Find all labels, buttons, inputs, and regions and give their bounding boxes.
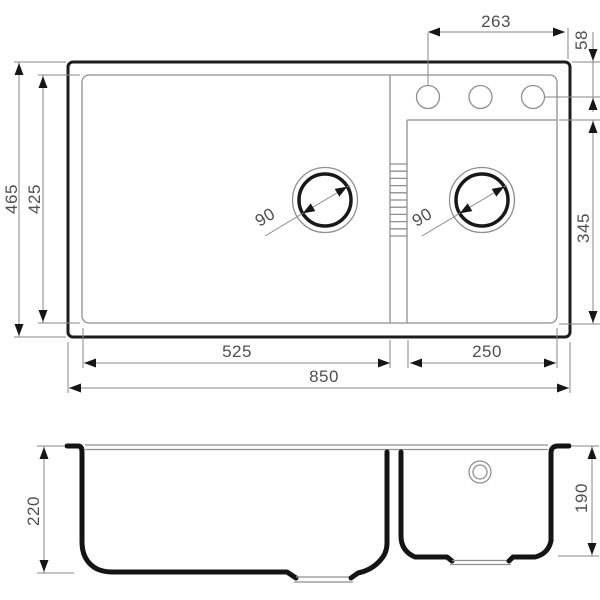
- outer-rim: [68, 62, 570, 337]
- arrow-left-icon: [84, 359, 96, 368]
- dim-lines: [428, 28, 568, 85]
- dim-right-bowl-length: 250: [408, 328, 557, 368]
- dim-label-525: 525: [222, 342, 252, 361]
- dim-faucet-offset: 58: [544, 30, 600, 112]
- arrow-down-icon: [589, 311, 598, 323]
- arrow-right-icon: [544, 359, 556, 368]
- arrow-right-icon: [557, 384, 569, 393]
- arrow-up-icon: [588, 447, 597, 459]
- drawing-canvas: 90 90 465 425: [0, 0, 600, 600]
- dim-right-bowl-width: 345: [559, 120, 600, 324]
- faucet-hole-2: [469, 86, 492, 109]
- right-drain-recess: [450, 561, 511, 565]
- dim-left-bowl-depth: 220: [24, 446, 74, 573]
- arrow-up-icon: [40, 447, 49, 459]
- arrow-left-icon: [410, 359, 422, 368]
- arrow-right-icon: [553, 28, 565, 37]
- dim-faucet-span: 263: [428, 12, 568, 85]
- dim-inner-width: 425: [25, 75, 80, 323]
- dim-lines: [38, 75, 80, 323]
- dim-label-190: 190: [572, 483, 591, 513]
- section-drain-outer-circle: [469, 461, 491, 483]
- arrow-down-icon: [588, 543, 597, 555]
- right-bowl-profile: [509, 446, 569, 561]
- dim-left-bowl-length: 525: [83, 328, 390, 368]
- dim-label-345: 345: [574, 213, 593, 243]
- dim-label-left-drain: 90: [252, 204, 279, 231]
- sink-technical-drawing: 90 90 465 425: [0, 0, 600, 600]
- divider-right-wall: [401, 452, 452, 561]
- arrow-up-icon: [589, 121, 598, 133]
- arrow-down-icon: [40, 560, 49, 572]
- arrow-right-icon: [378, 359, 390, 368]
- rim-top-lines: [85, 445, 548, 450]
- arrow-up-icon: [15, 63, 24, 75]
- divider-left-wall: [351, 452, 387, 578]
- dim-label-250: 250: [472, 342, 502, 361]
- arrow-down-icon: [39, 310, 48, 322]
- left-drain-icon: 90: [252, 168, 358, 237]
- dim-label-425: 425: [25, 184, 44, 214]
- dim-label-465: 465: [2, 184, 21, 214]
- top-view: 90 90 465 425: [2, 12, 600, 393]
- dim-label-850: 850: [309, 367, 339, 386]
- section-view: 220 190: [24, 445, 599, 582]
- arrow-up-icon: [39, 76, 48, 88]
- right-drain-icon: 90: [409, 168, 515, 237]
- divider-ribs: [390, 164, 407, 236]
- arrow-left-icon: [69, 384, 81, 393]
- left-bowl-profile: [67, 446, 296, 578]
- arrow-down-icon: [15, 324, 24, 336]
- arrow-up-icon: [589, 98, 598, 110]
- dim-label-220: 220: [24, 496, 43, 526]
- dim-right-bowl-depth: 190: [558, 446, 599, 556]
- faucet-hole-1: [417, 86, 440, 109]
- dim-label-right-drain: 90: [409, 204, 436, 231]
- faucet-hole-3: [522, 86, 545, 109]
- left-drain-recess: [294, 577, 353, 582]
- inner-rim: [82, 75, 557, 323]
- arrow-left-icon: [428, 28, 440, 37]
- section-drain-inner-circle: [473, 465, 487, 479]
- dim-label-263: 263: [481, 12, 511, 31]
- dim-label-58: 58: [572, 30, 591, 50]
